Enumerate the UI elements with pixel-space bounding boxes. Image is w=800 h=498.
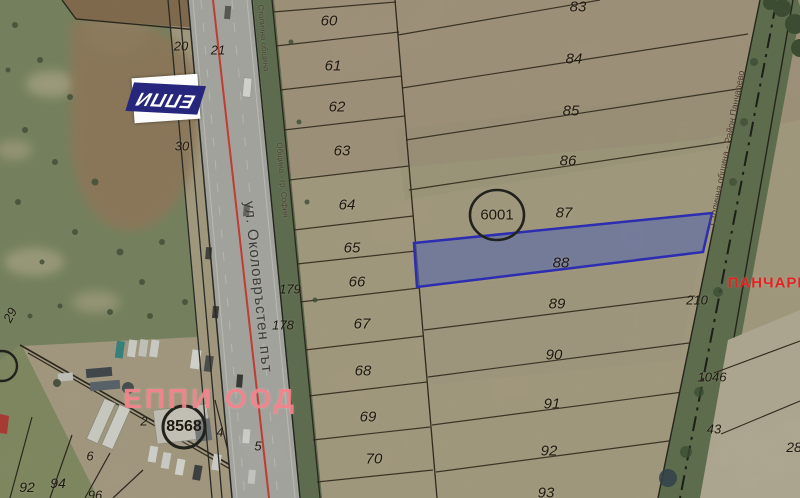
parcel-number-label: 64 — [339, 198, 356, 213]
parcel-number-label: 89 — [549, 297, 566, 312]
parcel-number-label: 86 — [560, 154, 577, 169]
parcel-number-label: 92 — [541, 444, 558, 459]
callout-8568-label: 8568 — [166, 419, 202, 435]
parcel-number-label: 91 — [544, 397, 561, 412]
parcel-number-label: 179 — [279, 283, 301, 296]
cadastral-map-viewport[interactable]: 2021302960616263646566676869701791788384… — [0, 0, 800, 498]
callout-6001-label: 6001 — [480, 208, 513, 223]
satellite-basemap — [0, 0, 800, 498]
parcel-number-label: 69 — [360, 410, 377, 425]
parcel-number-label: 93 — [538, 486, 555, 498]
eppi-logo: ЕППИ — [132, 74, 201, 123]
parcel-number-label: 43 — [707, 423, 721, 436]
parcel-number-label: 20 — [174, 40, 188, 53]
parcel-number-label: 66 — [349, 275, 366, 290]
parcel-number-label: 62 — [329, 100, 346, 115]
watermark-eppi-ood: ЕППИ ООД — [123, 385, 297, 413]
parcel-number-label: 88 — [553, 256, 570, 271]
parcel-number-label: 61 — [325, 59, 342, 74]
texture-grain — [0, 0, 800, 498]
parcel-number-label: 67 — [354, 317, 371, 332]
parcel-number-label: 68 — [355, 364, 372, 379]
eppi-logo-text: ЕППИ — [126, 82, 206, 114]
parcel-number-label: 2 — [140, 415, 147, 428]
parcel-number-label: 70 — [366, 452, 383, 467]
parcel-number-label: 83 — [570, 0, 587, 15]
parcel-number-label: 94 — [50, 476, 66, 490]
parcel-number-label: 6 — [86, 450, 93, 463]
parcel-number-label: 84 — [566, 52, 583, 67]
parcel-number-label: 1046 — [698, 371, 727, 384]
parcel-number-label: 63 — [334, 144, 351, 159]
parcel-number-label: 178 — [272, 319, 294, 332]
parcel-number-label: 90 — [546, 348, 563, 363]
parcel-number-label: 92 — [19, 480, 35, 494]
parcel-number-label: 60 — [321, 14, 338, 29]
parcel-number-label: 210 — [686, 294, 708, 307]
region-label-panchare: ПАНЧАРЕ — [728, 276, 800, 291]
parcel-number-label: 85 — [563, 104, 580, 119]
parcel-number-label: 96 — [88, 489, 102, 498]
parcel-number-label: 65 — [344, 241, 361, 256]
parcel-number-label: 28 — [786, 440, 800, 454]
parcel-number-label: 4 — [216, 426, 223, 439]
parcel-number-label: 87 — [556, 206, 573, 221]
parcel-number-label: 30 — [175, 140, 189, 153]
parcel-number-label: 21 — [211, 44, 225, 57]
parcel-number-label: 5 — [254, 440, 261, 453]
